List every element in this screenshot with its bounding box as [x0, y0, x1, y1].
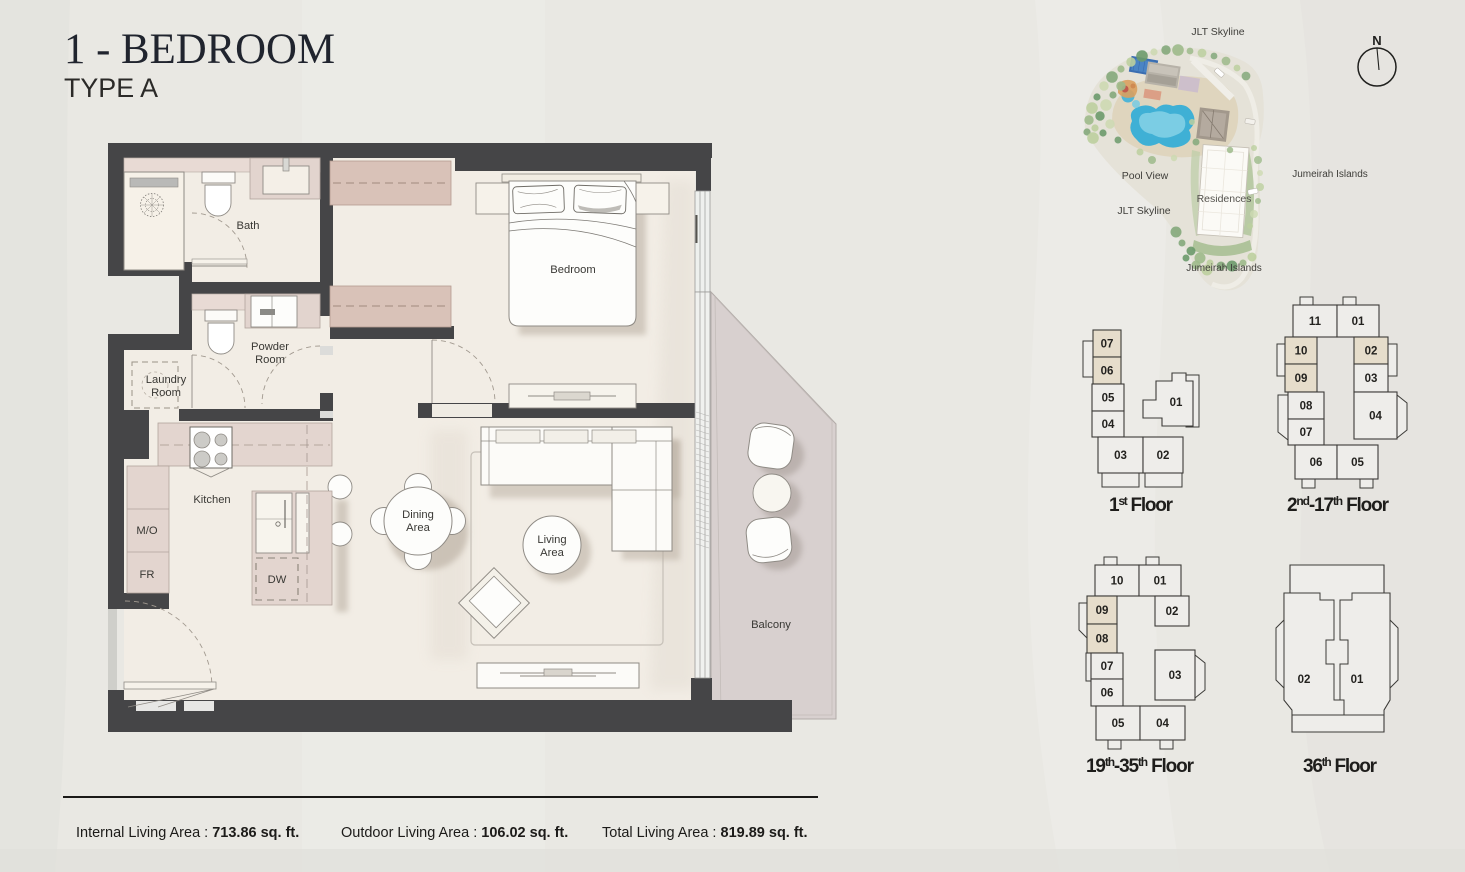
svg-text:JLT Skyline: JLT Skyline	[1117, 205, 1170, 217]
svg-text:Bedroom: Bedroom	[550, 264, 595, 276]
svg-text:08: 08	[1096, 634, 1109, 646]
svg-text:02: 02	[1157, 450, 1170, 462]
svg-text:04: 04	[1369, 411, 1382, 423]
svg-text:Room: Room	[151, 387, 181, 399]
svg-text:01: 01	[1351, 674, 1364, 686]
svg-text:Pool View: Pool View	[1122, 170, 1169, 182]
svg-text:06: 06	[1101, 366, 1114, 378]
svg-text:Room: Room	[255, 354, 285, 366]
svg-text:M/O: M/O	[136, 525, 157, 537]
svg-text:01: 01	[1154, 576, 1167, 588]
svg-text:Outdoor Living Area : 106.02 s: Outdoor Living Area : 106.02 sq. ft.	[341, 825, 568, 841]
svg-text:05: 05	[1112, 718, 1125, 730]
svg-text:05: 05	[1351, 457, 1364, 469]
svg-text:Powder: Powder	[251, 341, 289, 353]
svg-text:Jumeirah Islands: Jumeirah Islands	[1186, 263, 1262, 274]
svg-text:10: 10	[1111, 576, 1124, 588]
svg-text:Residences: Residences	[1197, 193, 1252, 205]
svg-text:08: 08	[1300, 401, 1313, 413]
svg-text:N: N	[1372, 33, 1381, 48]
svg-text:JLT Skyline: JLT Skyline	[1191, 26, 1244, 38]
svg-text:02: 02	[1166, 606, 1179, 618]
svg-text:36th Floor: 36th Floor	[1303, 755, 1378, 777]
svg-text:09: 09	[1096, 605, 1109, 617]
svg-text:Area: Area	[540, 547, 564, 559]
svg-text:Balcony: Balcony	[751, 619, 791, 631]
svg-text:Jumeirah Islands: Jumeirah Islands	[1292, 169, 1368, 180]
svg-text:Bath: Bath	[236, 220, 259, 232]
svg-text:Laundry: Laundry	[146, 374, 187, 386]
svg-text:03: 03	[1114, 450, 1127, 462]
svg-text:02: 02	[1365, 346, 1378, 358]
svg-text:06: 06	[1310, 457, 1323, 469]
svg-text:01: 01	[1352, 316, 1365, 328]
svg-text:02: 02	[1298, 674, 1311, 686]
svg-text:01: 01	[1170, 397, 1183, 409]
svg-text:DW: DW	[268, 574, 287, 586]
svg-text:03: 03	[1169, 670, 1182, 682]
svg-text:Kitchen: Kitchen	[193, 494, 230, 506]
svg-text:Internal Living Area : 713.86: Internal Living Area : 713.86 sq. ft.	[76, 825, 299, 841]
svg-text:Living: Living	[537, 534, 566, 546]
svg-text:04: 04	[1102, 419, 1115, 431]
svg-text:09: 09	[1295, 373, 1308, 385]
svg-text:11: 11	[1309, 316, 1322, 328]
svg-text:04: 04	[1156, 718, 1169, 730]
svg-text:1st Floor: 1st Floor	[1109, 494, 1174, 516]
svg-text:07: 07	[1300, 427, 1313, 439]
svg-text:Area: Area	[406, 522, 430, 534]
svg-text:07: 07	[1101, 339, 1114, 351]
svg-text:03: 03	[1365, 373, 1378, 385]
svg-text:06: 06	[1101, 688, 1114, 700]
svg-text:Dining: Dining	[402, 509, 434, 521]
svg-text:05: 05	[1102, 393, 1115, 405]
svg-text:10: 10	[1295, 346, 1308, 358]
svg-text:TYPE A: TYPE A	[64, 73, 158, 103]
svg-text:FR: FR	[140, 569, 155, 581]
svg-text:07: 07	[1101, 661, 1114, 673]
svg-text:1 - BEDROOM: 1 - BEDROOM	[64, 26, 335, 73]
svg-text:Total Living Area : 819.89 sq.: Total Living Area : 819.89 sq. ft.	[602, 825, 808, 841]
